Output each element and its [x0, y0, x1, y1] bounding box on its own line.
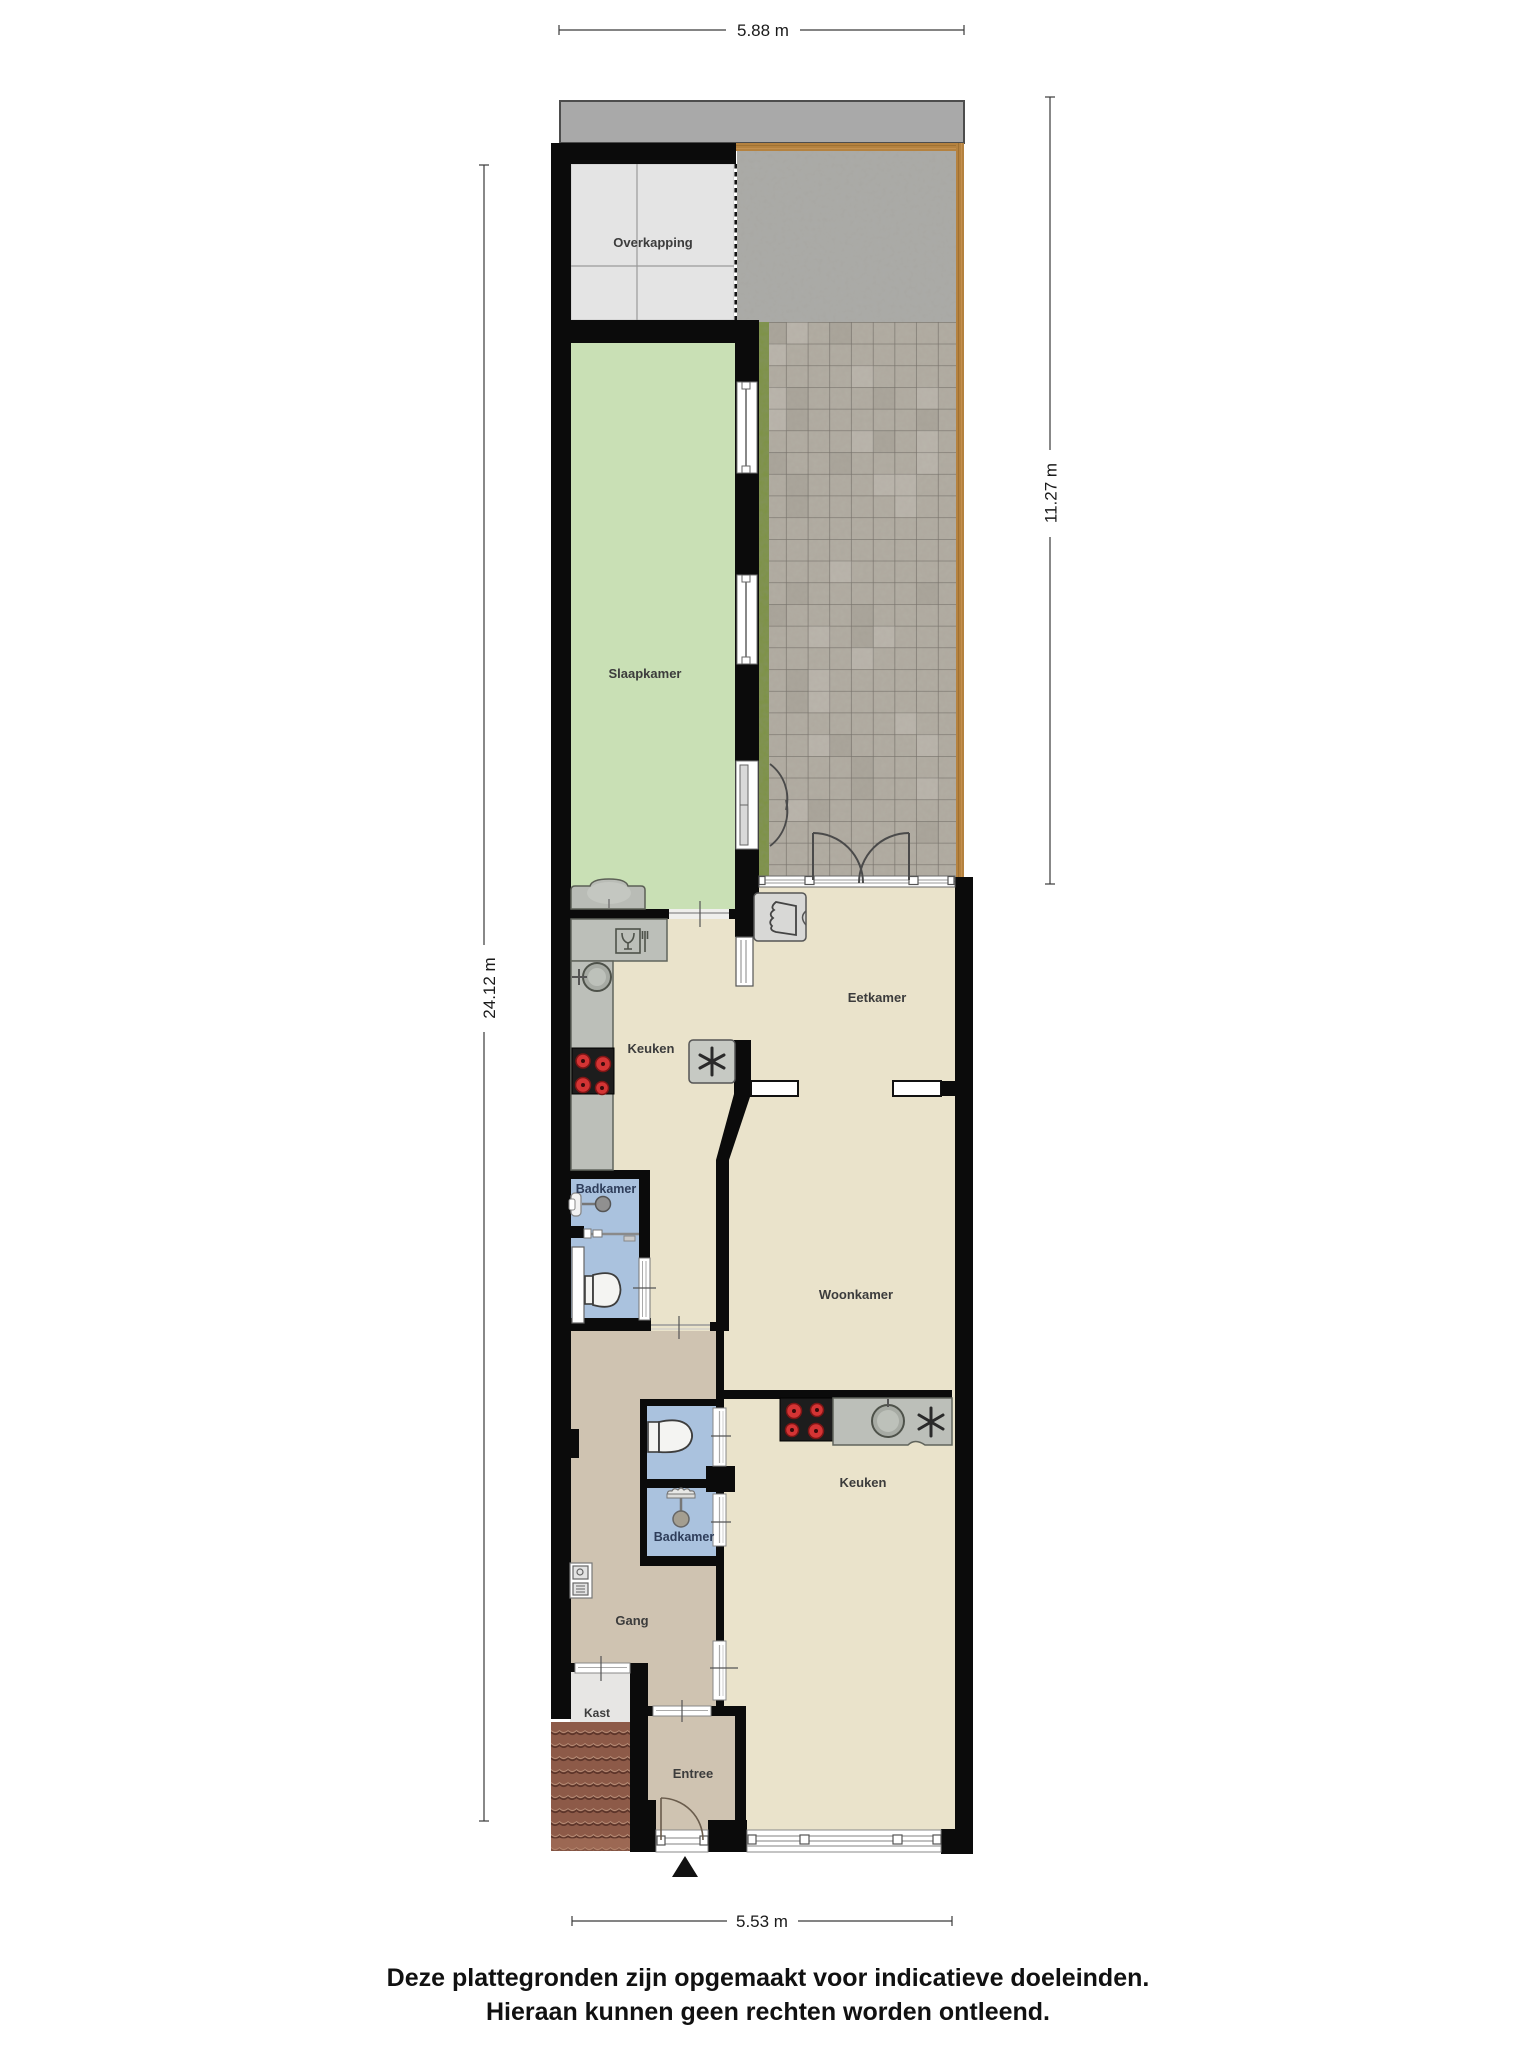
svg-text:Badkamer: Badkamer: [576, 1182, 637, 1196]
svg-text:Slaapkamer: Slaapkamer: [609, 666, 682, 681]
svg-text:Deze plattegronden zijn opgema: Deze plattegronden zijn opgemaakt voor i…: [387, 1964, 1150, 1992]
svg-text:Keuken: Keuken: [840, 1475, 887, 1490]
svg-text:Hieraan kunnen geen rechten wo: Hieraan kunnen geen rechten worden ontle…: [486, 1998, 1050, 2026]
svg-text:Kast: Kast: [584, 1706, 610, 1720]
svg-text:Keuken: Keuken: [628, 1041, 675, 1056]
svg-text:24.12 m: 24.12 m: [480, 957, 499, 1018]
svg-text:5.53 m: 5.53 m: [736, 1912, 788, 1931]
svg-text:Eetkamer: Eetkamer: [848, 990, 907, 1005]
svg-text:Overkapping: Overkapping: [613, 235, 693, 250]
svg-text:5.88 m: 5.88 m: [737, 21, 789, 40]
svg-text:Badkamer: Badkamer: [654, 1530, 715, 1544]
svg-text:Entree: Entree: [673, 1766, 713, 1781]
svg-text:Gang: Gang: [615, 1613, 648, 1628]
svg-text:11.27 m: 11.27 m: [1042, 463, 1061, 523]
svg-text:Woonkamer: Woonkamer: [819, 1287, 893, 1302]
